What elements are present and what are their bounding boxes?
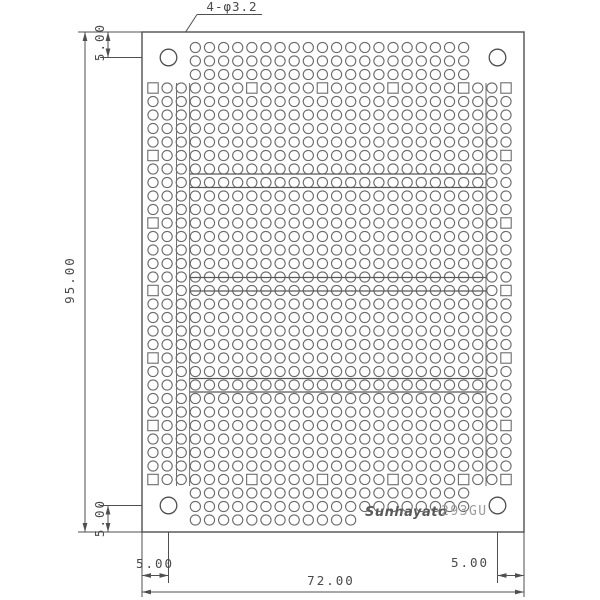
mounting-hole-bottom-left — [160, 497, 177, 514]
brand-logo: Sunhayato — [365, 505, 447, 520]
pcb-dimension-drawing — [0, 0, 600, 600]
dim-hole-offset-right-label: 5.00 — [440, 556, 500, 570]
dimension-arrowhead — [83, 32, 88, 41]
dimension-arrowhead — [83, 523, 88, 532]
dimension-arrowhead — [142, 590, 151, 595]
dim-board-width-label: 72.00 — [291, 574, 371, 588]
dim-hole-offset-left-label: 5.00 — [125, 557, 185, 571]
dim-hole-offset-top-label: 5.00 — [93, 17, 107, 67]
dimension-arrowhead — [142, 573, 151, 578]
mounting-hole-top-right — [489, 49, 506, 66]
dim-board-height-label: 95.00 — [63, 250, 77, 310]
dimension-arrowhead — [515, 590, 524, 595]
drawing-canvas: 4-φ3.2 95.00 5.00 5.00 5.00 5.00 72.00 S… — [0, 0, 600, 600]
dimension-arrowhead — [515, 573, 524, 578]
dimension-arrowhead — [160, 573, 169, 578]
model-number: 293GU — [441, 504, 488, 520]
dimension-arrowhead — [498, 573, 507, 578]
hole-spec-label: 4-φ3.2 — [192, 0, 272, 14]
mounting-hole-top-left — [160, 49, 177, 66]
mounting-hole-bottom-right — [489, 497, 506, 514]
dim-hole-offset-bottom-label: 5.00 — [93, 493, 107, 543]
